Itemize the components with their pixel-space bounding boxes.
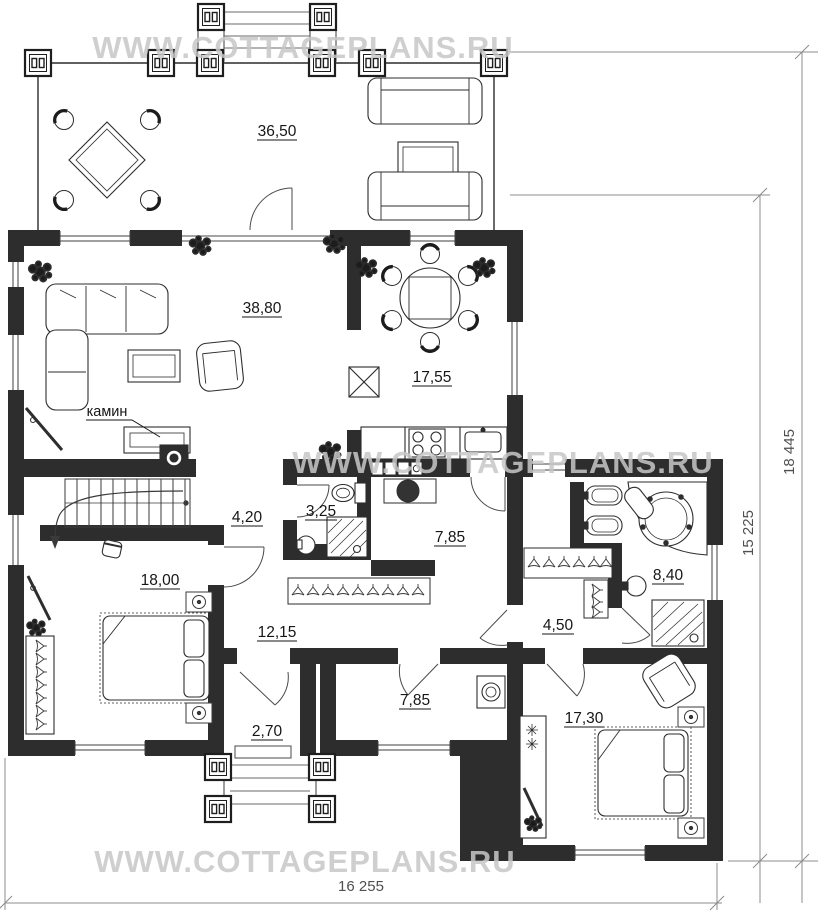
jacuzzi xyxy=(621,482,707,555)
coffee-table xyxy=(128,350,180,382)
utility-fixtures xyxy=(477,676,505,708)
wardrobe xyxy=(26,636,54,734)
window xyxy=(13,262,18,287)
wardrobe-cabinet xyxy=(584,580,608,618)
nightstand xyxy=(678,707,704,727)
room-area-corridor: 7,85 xyxy=(435,529,465,546)
entry-threshold xyxy=(235,746,291,758)
bedroom-2-furniture xyxy=(520,650,704,838)
window xyxy=(13,515,18,565)
nightstand xyxy=(186,592,212,612)
entry-door xyxy=(240,672,288,705)
window xyxy=(13,335,18,390)
wardrobe-corridor-door xyxy=(480,610,507,645)
shower-cabin xyxy=(327,517,367,557)
window xyxy=(410,231,455,245)
wardrobe-corridor-fixtures xyxy=(524,548,612,618)
vanity-basin xyxy=(397,480,419,502)
window xyxy=(378,741,450,755)
watermark-top: WWW.COTTAGEPLANS.RU xyxy=(92,30,513,65)
room-area-living: 38,80 xyxy=(243,300,282,317)
tv-unit xyxy=(26,408,62,450)
column-icon xyxy=(25,50,51,76)
dimension-height-right-outer: 18 445 xyxy=(781,429,798,475)
toilet xyxy=(332,483,366,503)
column-icon xyxy=(205,754,231,780)
room-area-kitchen: 17,55 xyxy=(413,369,452,386)
column-icon xyxy=(309,796,335,822)
dimension-height-right-inner: 15 225 xyxy=(740,510,757,556)
fireplace-label: камин xyxy=(87,404,128,420)
bathroom-big-door xyxy=(622,608,650,643)
washbasin xyxy=(297,536,315,554)
floor-plan-page: 36,50 38,80 17,55 4,20 3,25 7,85 18,00 1… xyxy=(0,0,820,917)
washing-machine xyxy=(477,676,505,708)
column-icon xyxy=(310,4,336,30)
dimension-width-bottom: 16 255 xyxy=(338,878,384,895)
room-area-hallway: 12,15 xyxy=(258,624,297,641)
hall-wardrobe xyxy=(288,578,430,604)
wardrobe xyxy=(524,548,612,578)
window xyxy=(75,741,145,755)
column-icon xyxy=(198,4,224,30)
dining-table xyxy=(379,245,481,352)
window xyxy=(712,545,717,600)
window xyxy=(512,322,517,395)
small-chair xyxy=(102,539,123,558)
room-area-terrace: 36,50 xyxy=(258,123,297,140)
window xyxy=(60,231,130,245)
room-area-stair-hall: 4,20 xyxy=(232,509,263,526)
column-icon xyxy=(309,754,335,780)
room-area-bathroom-big: 8,40 xyxy=(653,567,684,584)
tv-unit xyxy=(28,576,50,620)
fridge xyxy=(349,367,379,397)
watermark-bottom: WWW.COTTAGEPLANS.RU xyxy=(94,844,515,879)
bed xyxy=(598,730,688,816)
terrace-dining-set xyxy=(51,107,164,214)
terrace-door xyxy=(182,188,330,241)
window xyxy=(575,846,645,860)
washbasin-round xyxy=(622,576,646,596)
porch-steps-bottom xyxy=(205,754,335,822)
washbasin xyxy=(584,486,622,505)
shower-cabin xyxy=(652,600,704,646)
armchair xyxy=(196,340,245,392)
terrace-sofa-set xyxy=(368,78,482,220)
nightstand xyxy=(678,818,704,838)
floor-plan-drawing: 36,50 38,80 17,55 4,20 3,25 7,85 18,00 1… xyxy=(0,0,820,917)
room-area-bedroom-2: 17,30 xyxy=(565,710,604,727)
room-area-bathroom-small: 3,25 xyxy=(306,503,336,520)
kitchen-door xyxy=(471,477,505,511)
living-room-furniture xyxy=(26,234,345,471)
bed xyxy=(103,616,209,700)
washbasin xyxy=(584,516,622,535)
nightstand xyxy=(186,703,212,723)
utility-door xyxy=(399,664,438,695)
watermark-middle: WWW.COTTAGEPLANS.RU xyxy=(292,445,713,480)
bedroom-1-door xyxy=(224,547,264,587)
room-area-utility: 7,85 xyxy=(400,692,430,709)
corner-sofa xyxy=(46,284,168,410)
column-icon xyxy=(205,796,231,822)
room-area-entry: 2,70 xyxy=(252,723,283,740)
room-area-bedroom-1: 18,00 xyxy=(141,572,180,589)
bedroom-2-door xyxy=(547,664,584,696)
bedroom-1-furniture xyxy=(26,539,212,734)
room-area-wardrobe-corridor: 4,50 xyxy=(543,617,574,634)
